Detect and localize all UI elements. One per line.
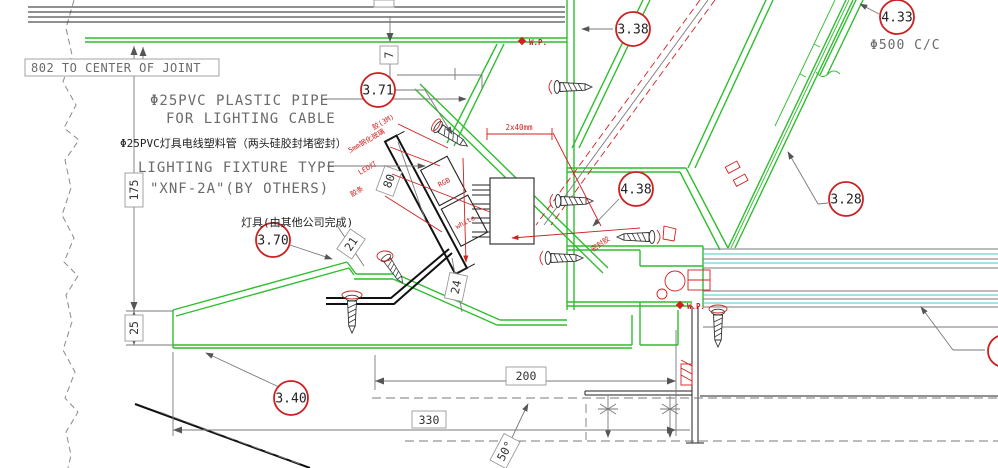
svg-text:W.P.: W.P. [529,38,547,47]
dim-25: 25 [125,315,143,341]
clipped-top-label [374,0,394,7]
svg-text:3.28: 3.28 [830,193,861,208]
svg-text:胶条: 胶条 [349,184,366,199]
svg-text:7: 7 [382,51,396,58]
svg-text:3.38: 3.38 [617,23,648,38]
fixture-note-en1: LIGHTING FIXTURE TYPE [138,160,336,176]
dim-175: 175 [125,173,143,207]
rafter-4-33 [820,0,863,75]
steel-plate [686,306,704,443]
screw-icon [712,309,725,347]
anchor-spacing-note: Φ500 C/C [870,38,941,53]
svg-text:3.70: 3.70 [257,234,288,249]
joint-note: 802 TO CENTER OF JOINT [25,59,219,76]
work-point-mid: W.P. [676,301,705,311]
screw-icon [617,231,655,244]
callout-3-28: 3.28 [829,182,863,216]
annotation-text: 802 TO CENTER OF JOINT Φ25PVC PLASTIC PI… [25,37,941,311]
svg-text:胶(3M): 胶(3M) [371,112,396,132]
svg-text:5mm钢化玻璃: 5mm钢化玻璃 [347,127,387,155]
svg-text:W.P.: W.P. [687,302,705,311]
steel-brackets [326,249,704,443]
anchor-hatch [681,360,692,385]
fixture-note-en2: "XNF-2A"(BY OTHERS) [150,181,329,197]
dim-80: 80 [376,166,402,197]
svg-text:175: 175 [127,180,141,201]
pipe-note-en1: Φ25PVC PLASTIC PIPE [150,93,329,109]
label-led: LED灯 [357,159,379,177]
label-sealant: 密封胶 [589,234,611,253]
pvc-pipe [447,44,504,146]
svg-text:LED灯: LED灯 [357,159,379,177]
callouts: 3.38 4.33 3.71 4.38 3.28 3.70 3.40 [256,0,998,415]
top-structure-lines [28,0,567,42]
label-tape: 胶(3M) [371,112,396,132]
label-glass: 5mm钢化玻璃 [347,127,387,155]
callout-clipped-right [988,335,998,367]
work-point-top: W.P. [518,37,547,47]
svg-text:200: 200 [516,369,537,383]
callout-3-38: 3.38 [616,12,650,46]
svg-text:密封胶: 密封胶 [589,234,611,253]
dim-21: 21 [337,229,365,259]
svg-text:802 TO CENTER OF JOINT: 802 TO CENTER OF JOINT [31,61,201,75]
svg-text:3.71: 3.71 [362,84,393,99]
screw-icon [380,253,407,286]
callout-3-71: 3.71 [361,73,395,107]
screw-icon [346,295,359,333]
bottom-aluminum-panel [173,262,678,348]
insulated-glass-unit [657,161,998,327]
dim-200: 200 [506,367,546,385]
slab-lines [135,396,998,468]
svg-text:330: 330 [419,413,440,427]
pipe-note-en2: FOR LIGHTING CABLE [166,111,336,127]
svg-text:25: 25 [127,321,141,335]
dim-330: 330 [412,411,446,428]
label-strip: 胶条 [349,184,366,199]
fixture-note-cn: 灯具(由其他公司完成) [241,215,353,229]
callout-4-38: 4.38 [619,172,653,206]
rafter-2 [688,0,773,168]
svg-text:24: 24 [448,279,465,296]
svg-text:4.33: 4.33 [881,11,912,26]
drawing-canvas: RGB white [0,0,998,468]
cad-detail-drawing: RGB white [0,0,998,468]
svg-text:3.40: 3.40 [275,392,306,407]
pipe-note-cn: Φ25PVC灯具电线塑料管（两头硅胶封堵密封） [120,136,347,150]
dim-7: 7 [380,46,398,64]
dim-angle: 50° [490,434,520,468]
svg-text:4.38: 4.38 [620,183,651,198]
screw-icon [545,252,583,265]
led-driver-box [490,178,534,244]
callout-3-40: 3.40 [274,381,308,415]
dim-24: 24 [444,272,467,301]
svg-text:2x40mm: 2x40mm [505,123,533,132]
anchor-bolt-icon [598,396,618,438]
callout-4-33: 4.33 [880,0,914,34]
dim-led-width: 2x40mm [487,123,552,140]
screw-icon [554,81,592,94]
